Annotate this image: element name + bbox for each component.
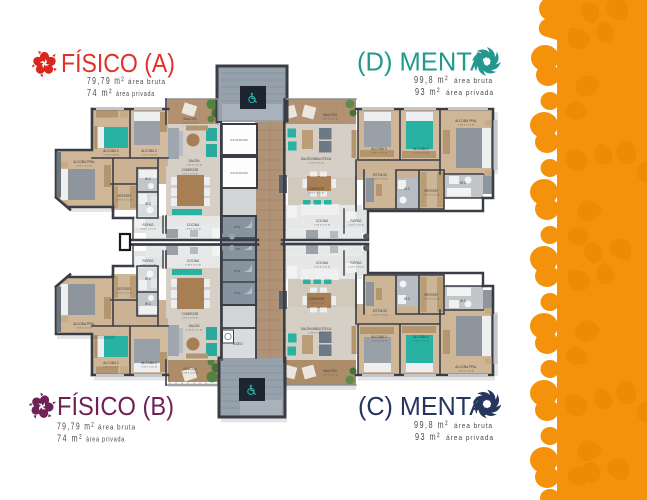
svg-text:ROPAS: ROPAS [351,261,362,265]
svg-text:2.98 X 3.10 M: 2.98 X 3.10 M [308,163,324,165]
svg-text:VESTIER: VESTIER [424,293,438,297]
svg-text:2.98 X 3.10 M: 2.98 X 3.10 M [141,367,157,369]
svg-text:COCINA: COCINA [316,219,329,223]
svg-text:ALCOBA 3: ALCOBA 3 [141,361,157,365]
svg-text:W.C: W.C [460,181,467,185]
svg-text:ASCENSOR: ASCENSOR [230,171,248,175]
svg-text:ALCOBA 2: ALCOBA 2 [413,147,429,151]
svg-text:ESTUDIO: ESTUDIO [373,173,388,177]
svg-text:ALCOBA 2: ALCOBA 2 [103,361,119,365]
svg-text:COMEDOR: COMEDOR [308,187,325,191]
svg-text:2.98 X 3.10 M: 2.98 X 3.10 M [185,229,201,231]
svg-text:2.98 X 3.10 M: 2.98 X 3.10 M [185,265,201,267]
svg-text:área privada: área privada [116,89,155,98]
svg-text:ALCOBA PPAL: ALCOBA PPAL [455,365,477,369]
svg-text:FÍSICO (B): FÍSICO (B) [57,392,174,421]
svg-text:2.98 X 3.10 M: 2.98 X 3.10 M [182,123,198,125]
svg-text:74 m²: 74 m² [87,88,113,99]
svg-text:área privada: área privada [86,435,125,444]
svg-text:W.C: W.C [460,299,467,303]
svg-text:2.98 X 3.10 M: 2.98 X 3.10 M [314,267,330,269]
svg-text:2.98 X 3.10 M: 2.98 X 3.10 M [308,193,324,195]
svg-text:2.98 X 3.10 M: 2.98 X 3.10 M [314,225,330,227]
svg-text:2.98 X 3.10 M: 2.98 X 3.10 M [116,200,132,202]
svg-text:área bruta: área bruta [454,421,493,430]
svg-text:2.98 X 3.10 M: 2.98 X 3.10 M [322,119,338,121]
svg-text:ALCOBA PPAL: ALCOBA PPAL [73,322,95,326]
svg-text:W.C: W.C [404,187,411,191]
svg-text:área bruta: área bruta [98,423,136,432]
svg-text:2.98 X 3.10 M: 2.98 X 3.10 M [182,174,198,176]
svg-text:ÚTIL: ÚTIL [234,290,241,295]
svg-text:W.C: W.C [145,177,152,181]
svg-text:COMEDOR: COMEDOR [182,168,199,172]
svg-text:2.98 X 3.10 M: 2.98 X 3.10 M [371,153,387,155]
svg-text:2.98 X 3.10 M: 2.98 X 3.10 M [103,155,119,157]
svg-text:ALCOBA 2: ALCOBA 2 [413,335,429,339]
svg-text:ÚTIL: ÚTIL [234,246,241,251]
svg-text:2.98 X 3.10 M: 2.98 X 3.10 M [458,125,474,127]
svg-text:SALÓN BIBLIOTECA: SALÓN BIBLIOTECA [301,156,332,161]
svg-text:79,79 m²: 79,79 m² [87,76,125,87]
svg-text:2.98 X 3.10 M: 2.98 X 3.10 M [141,155,157,157]
svg-text:(D) MENTA: (D) MENTA [357,49,487,77]
svg-text:2.98 X 3.10 M: 2.98 X 3.10 M [348,267,364,269]
svg-text:COCINA: COCINA [316,261,329,265]
svg-text:COMEDOR: COMEDOR [308,297,325,301]
svg-text:ROPAS: ROPAS [143,259,154,263]
svg-text:ROPAS: ROPAS [143,223,154,227]
svg-text:2.98 X 3.10 M: 2.98 X 3.10 M [458,371,474,373]
svg-text:93 m²: 93 m² [415,432,441,443]
svg-text:W.C: W.C [404,297,411,301]
svg-text:BALCÓN: BALCÓN [183,366,197,371]
svg-text:COCINA: COCINA [187,223,200,227]
svg-text:área privada: área privada [446,433,494,442]
svg-text:2.98 X 3.10 M: 2.98 X 3.10 M [372,315,388,317]
svg-text:ALCOBA PPAL: ALCOBA PPAL [73,160,95,164]
svg-text:BALCÓN: BALCÓN [183,116,197,121]
svg-text:ALCOBA 3: ALCOBA 3 [371,147,387,151]
svg-text:2.98 X 3.10 M: 2.98 X 3.10 M [413,341,429,343]
svg-text:2.98 X 3.10 M: 2.98 X 3.10 M [308,303,324,305]
svg-text:ASEO: ASEO [233,342,243,346]
svg-text:2.98 X 3.10 M: 2.98 X 3.10 M [186,330,202,332]
svg-text:2.98 X 3.10 M: 2.98 X 3.10 M [423,195,439,197]
svg-text:W.C: W.C [145,277,152,281]
svg-text:2.98 X 3.10 M: 2.98 X 3.10 M [186,165,202,167]
svg-text:W.C: W.C [145,302,152,306]
svg-text:2.98 X 3.10 M: 2.98 X 3.10 M [423,299,439,301]
svg-text:(C) MENTA: (C) MENTA [358,393,486,421]
svg-text:VESTIER: VESTIER [117,194,131,198]
svg-text:2.98 X 3.10 M: 2.98 X 3.10 M [413,153,429,155]
svg-text:ROPAS: ROPAS [351,219,362,223]
svg-text:SALÓN: SALÓN [189,158,201,163]
svg-text:2.98 X 3.10 M: 2.98 X 3.10 M [76,328,92,330]
svg-text:área privada: área privada [446,88,494,97]
svg-text:COCINA: COCINA [187,259,200,263]
svg-text:ALCOBA 3: ALCOBA 3 [371,335,387,339]
svg-text:74 m²: 74 m² [57,434,83,445]
svg-text:ÚTIL: ÚTIL [234,224,241,229]
svg-text:ÚTIL: ÚTIL [234,268,241,273]
svg-text:BALCÓN: BALCÓN [323,368,337,373]
svg-text:ASCENSOR: ASCENSOR [230,138,248,142]
svg-text:COMEDOR: COMEDOR [182,312,199,316]
svg-text:2.98 X 3.10 M: 2.98 X 3.10 M [348,225,364,227]
svg-text:ESTUDIO: ESTUDIO [373,309,388,313]
svg-text:2.98 X 3.10 M: 2.98 X 3.10 M [103,367,119,369]
svg-text:2.98 X 3.10 M: 2.98 X 3.10 M [140,265,156,267]
svg-text:2.98 X 3.10 M: 2.98 X 3.10 M [182,318,198,320]
svg-text:2.98 X 3.10 M: 2.98 X 3.10 M [140,229,156,231]
svg-text:área bruta: área bruta [454,76,493,85]
svg-text:2.98 X 3.10 M: 2.98 X 3.10 M [322,375,338,377]
svg-text:79,79 m²: 79,79 m² [57,422,95,433]
svg-text:ALCOBA 3: ALCOBA 3 [141,149,157,153]
svg-text:2.98 X 3.10 M: 2.98 X 3.10 M [76,166,92,168]
svg-text:2.98 X 3.10 M: 2.98 X 3.10 M [372,179,388,181]
svg-text:SALÓN: SALÓN [189,323,201,328]
svg-text:W.C: W.C [145,202,152,206]
svg-text:VESTIER: VESTIER [424,189,438,193]
svg-text:2.98 X 3.10 M: 2.98 X 3.10 M [308,333,324,335]
svg-text:ALCOBA PPAL: ALCOBA PPAL [455,119,477,123]
svg-text:2.98 X 3.10 M: 2.98 X 3.10 M [116,293,132,295]
svg-text:99,8 m²: 99,8 m² [414,75,449,86]
svg-text:93 m²: 93 m² [415,87,441,98]
svg-text:2.98 X 3.10 M: 2.98 X 3.10 M [371,341,387,343]
svg-text:SALÓN BIBLIOTECA: SALÓN BIBLIOTECA [301,326,332,331]
svg-text:BALCÓN: BALCÓN [323,112,337,117]
svg-text:VESTIER: VESTIER [117,287,131,291]
svg-text:FÍSICO (A): FÍSICO (A) [61,49,175,78]
svg-text:área bruta: área bruta [128,77,166,86]
svg-text:2.98 X 3.10 M: 2.98 X 3.10 M [182,373,198,375]
svg-text:ALCOBA 2: ALCOBA 2 [103,149,119,153]
svg-text:99,8 m²: 99,8 m² [414,420,449,431]
